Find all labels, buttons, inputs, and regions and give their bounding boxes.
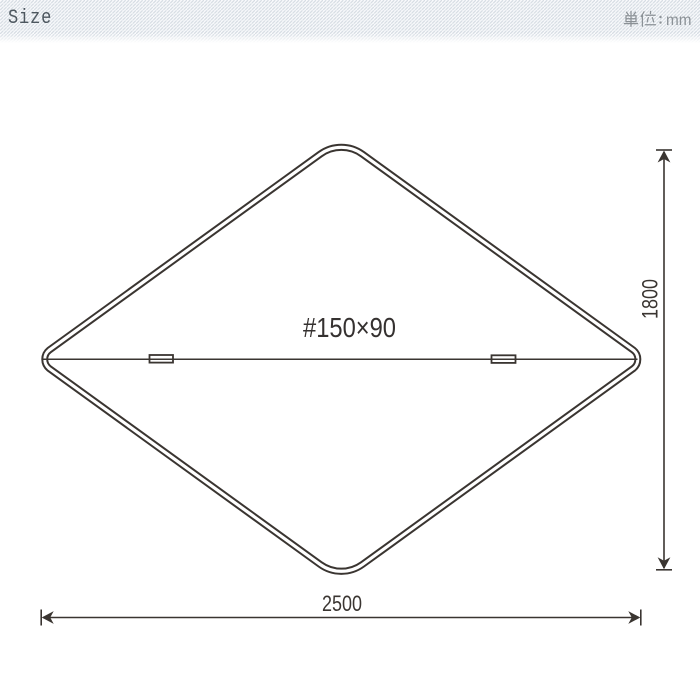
svg-text:#150×90: #150×90 bbox=[303, 312, 396, 343]
svg-text:mm: mm bbox=[666, 12, 692, 29]
svg-text:1800: 1800 bbox=[638, 279, 663, 319]
svg-text:2500: 2500 bbox=[322, 591, 362, 616]
